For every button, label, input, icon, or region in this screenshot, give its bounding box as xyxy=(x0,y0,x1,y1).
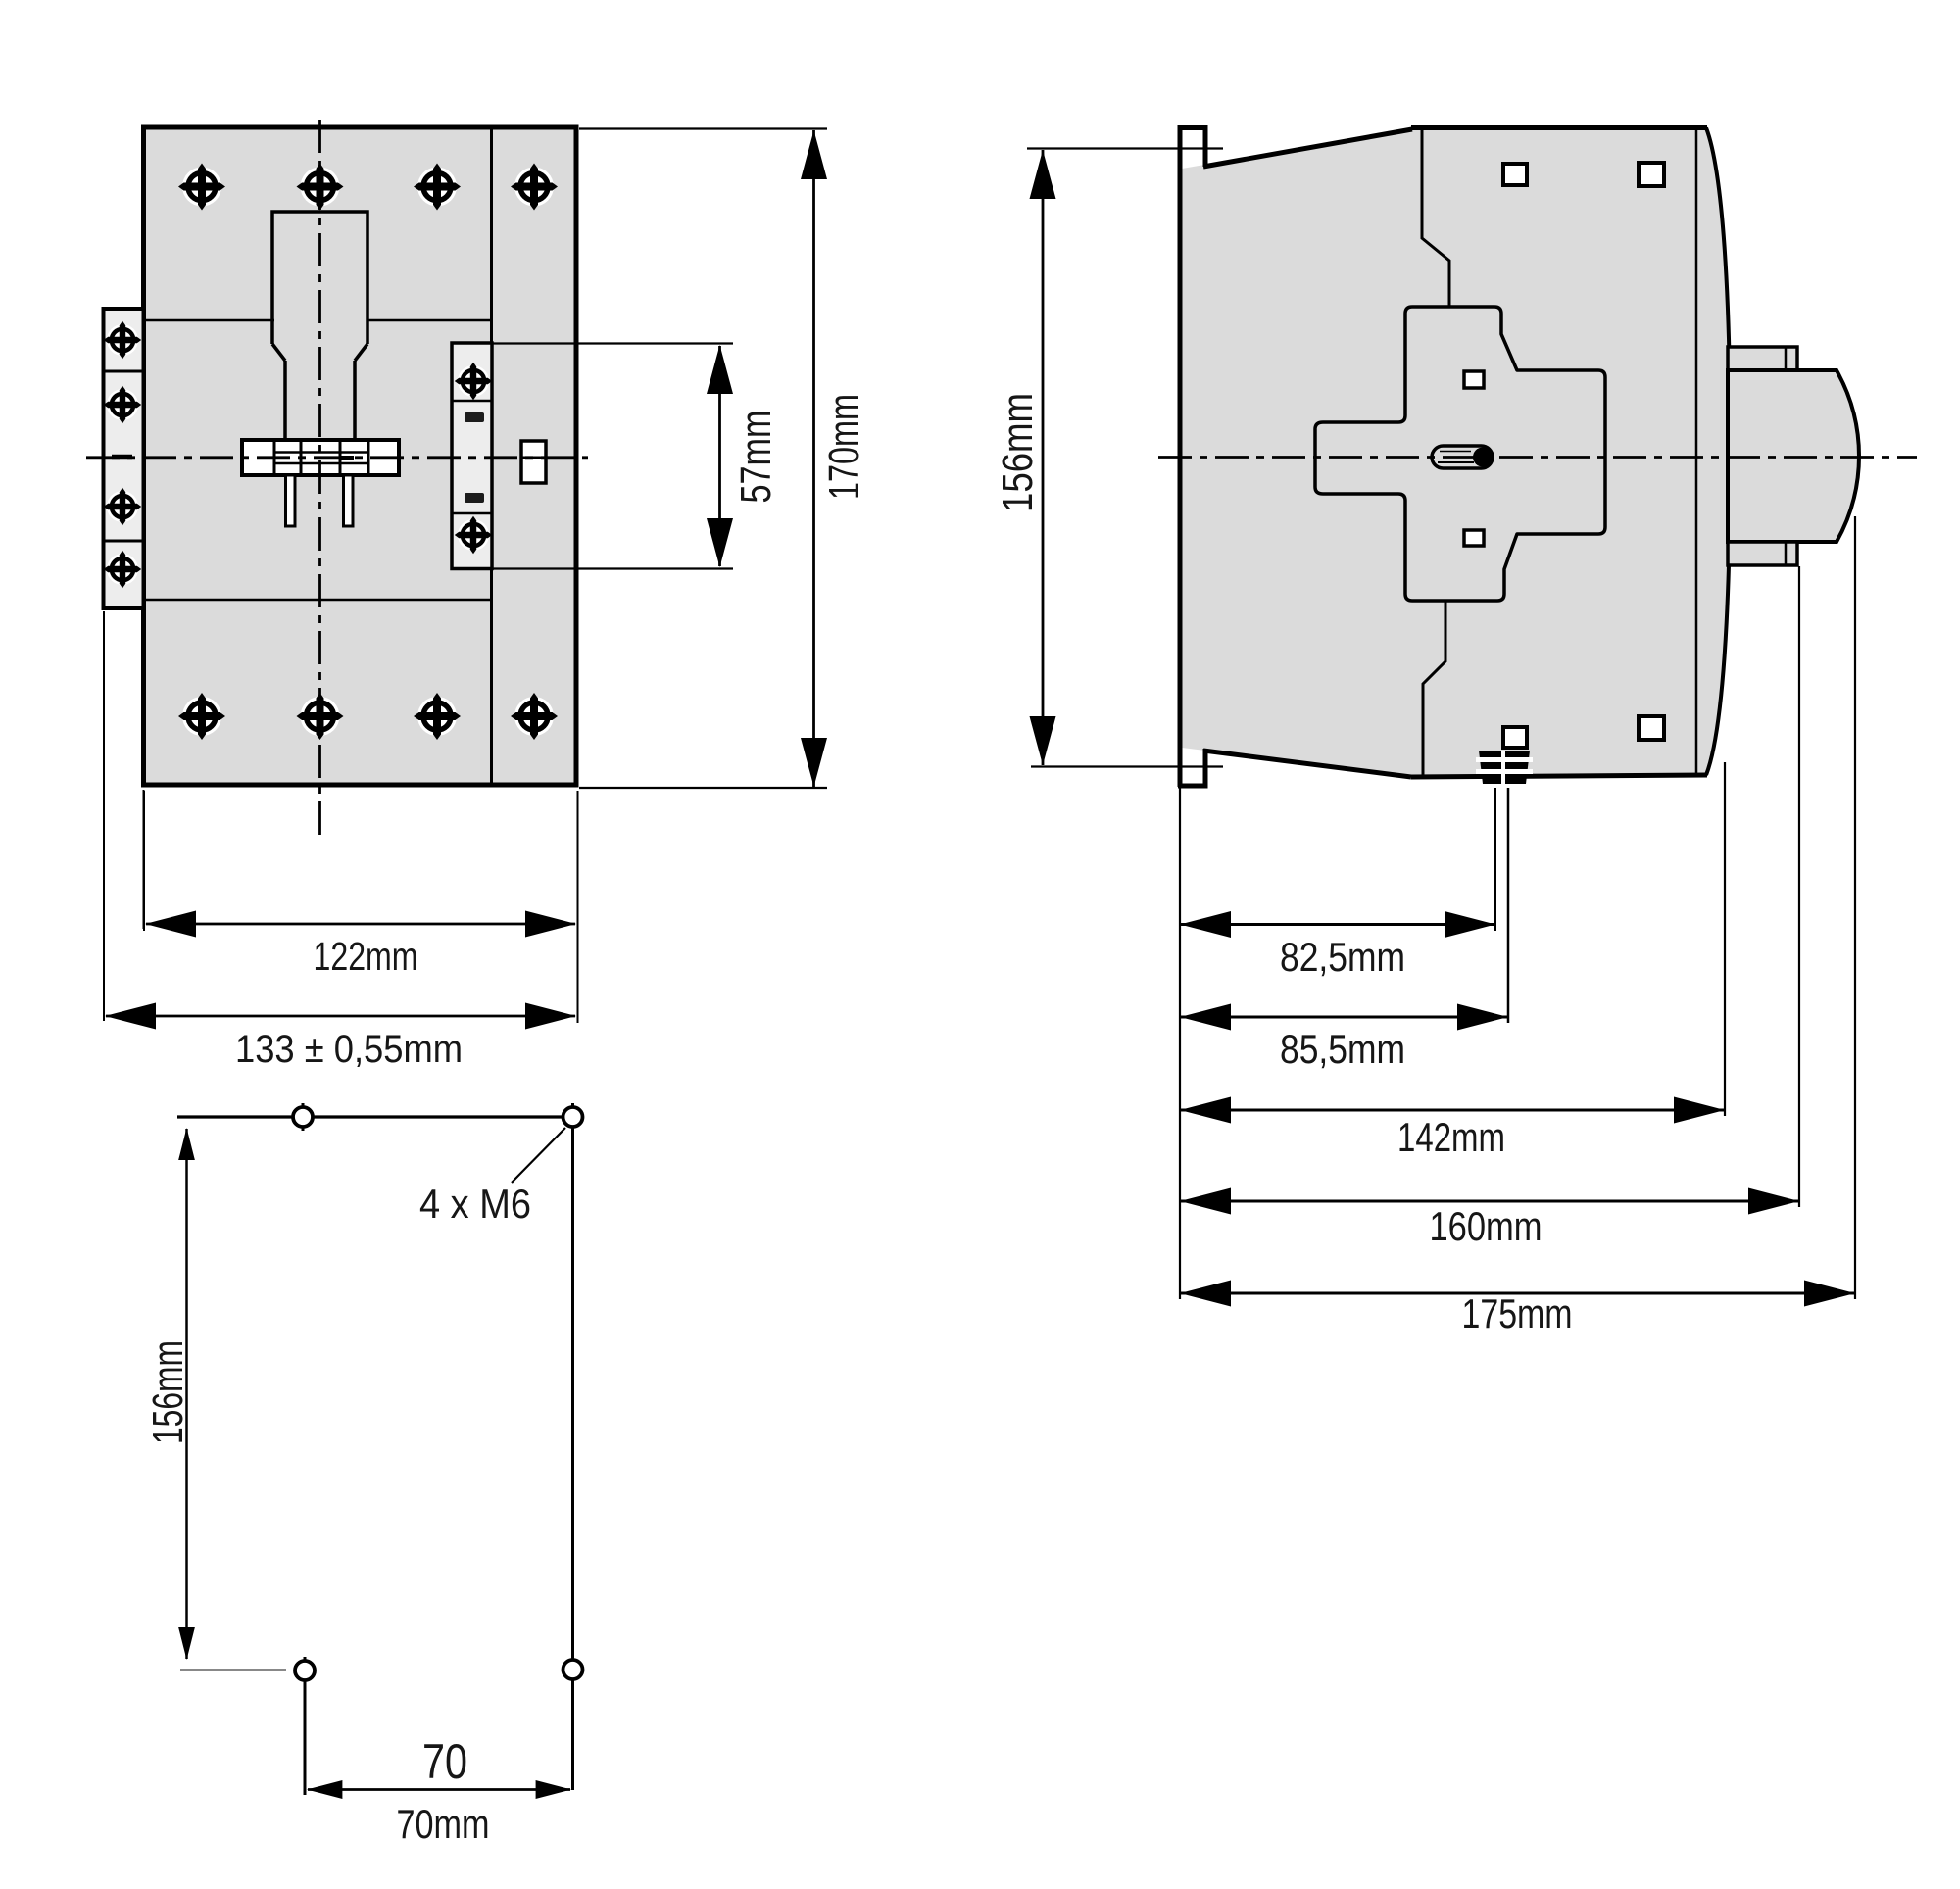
svg-text:70: 70 xyxy=(422,1734,467,1789)
svg-text:156mm: 156mm xyxy=(144,1340,192,1444)
svg-text:70mm: 70mm xyxy=(397,1801,490,1847)
svg-text:175mm: 175mm xyxy=(1462,1290,1573,1336)
svg-text:57mm: 57mm xyxy=(732,411,780,504)
svg-text:156mm: 156mm xyxy=(994,393,1042,512)
svg-text:160mm: 160mm xyxy=(1430,1203,1543,1249)
svg-text:142mm: 142mm xyxy=(1397,1114,1505,1160)
svg-text:4 x M6: 4 x M6 xyxy=(419,1181,531,1227)
svg-text:85,5mm: 85,5mm xyxy=(1280,1026,1405,1072)
svg-text:82,5mm: 82,5mm xyxy=(1280,934,1405,980)
svg-text:122mm: 122mm xyxy=(314,934,418,979)
svg-text:133 ± 0,55mm: 133 ± 0,55mm xyxy=(235,1028,463,1071)
svg-text:170mm: 170mm xyxy=(820,394,868,500)
